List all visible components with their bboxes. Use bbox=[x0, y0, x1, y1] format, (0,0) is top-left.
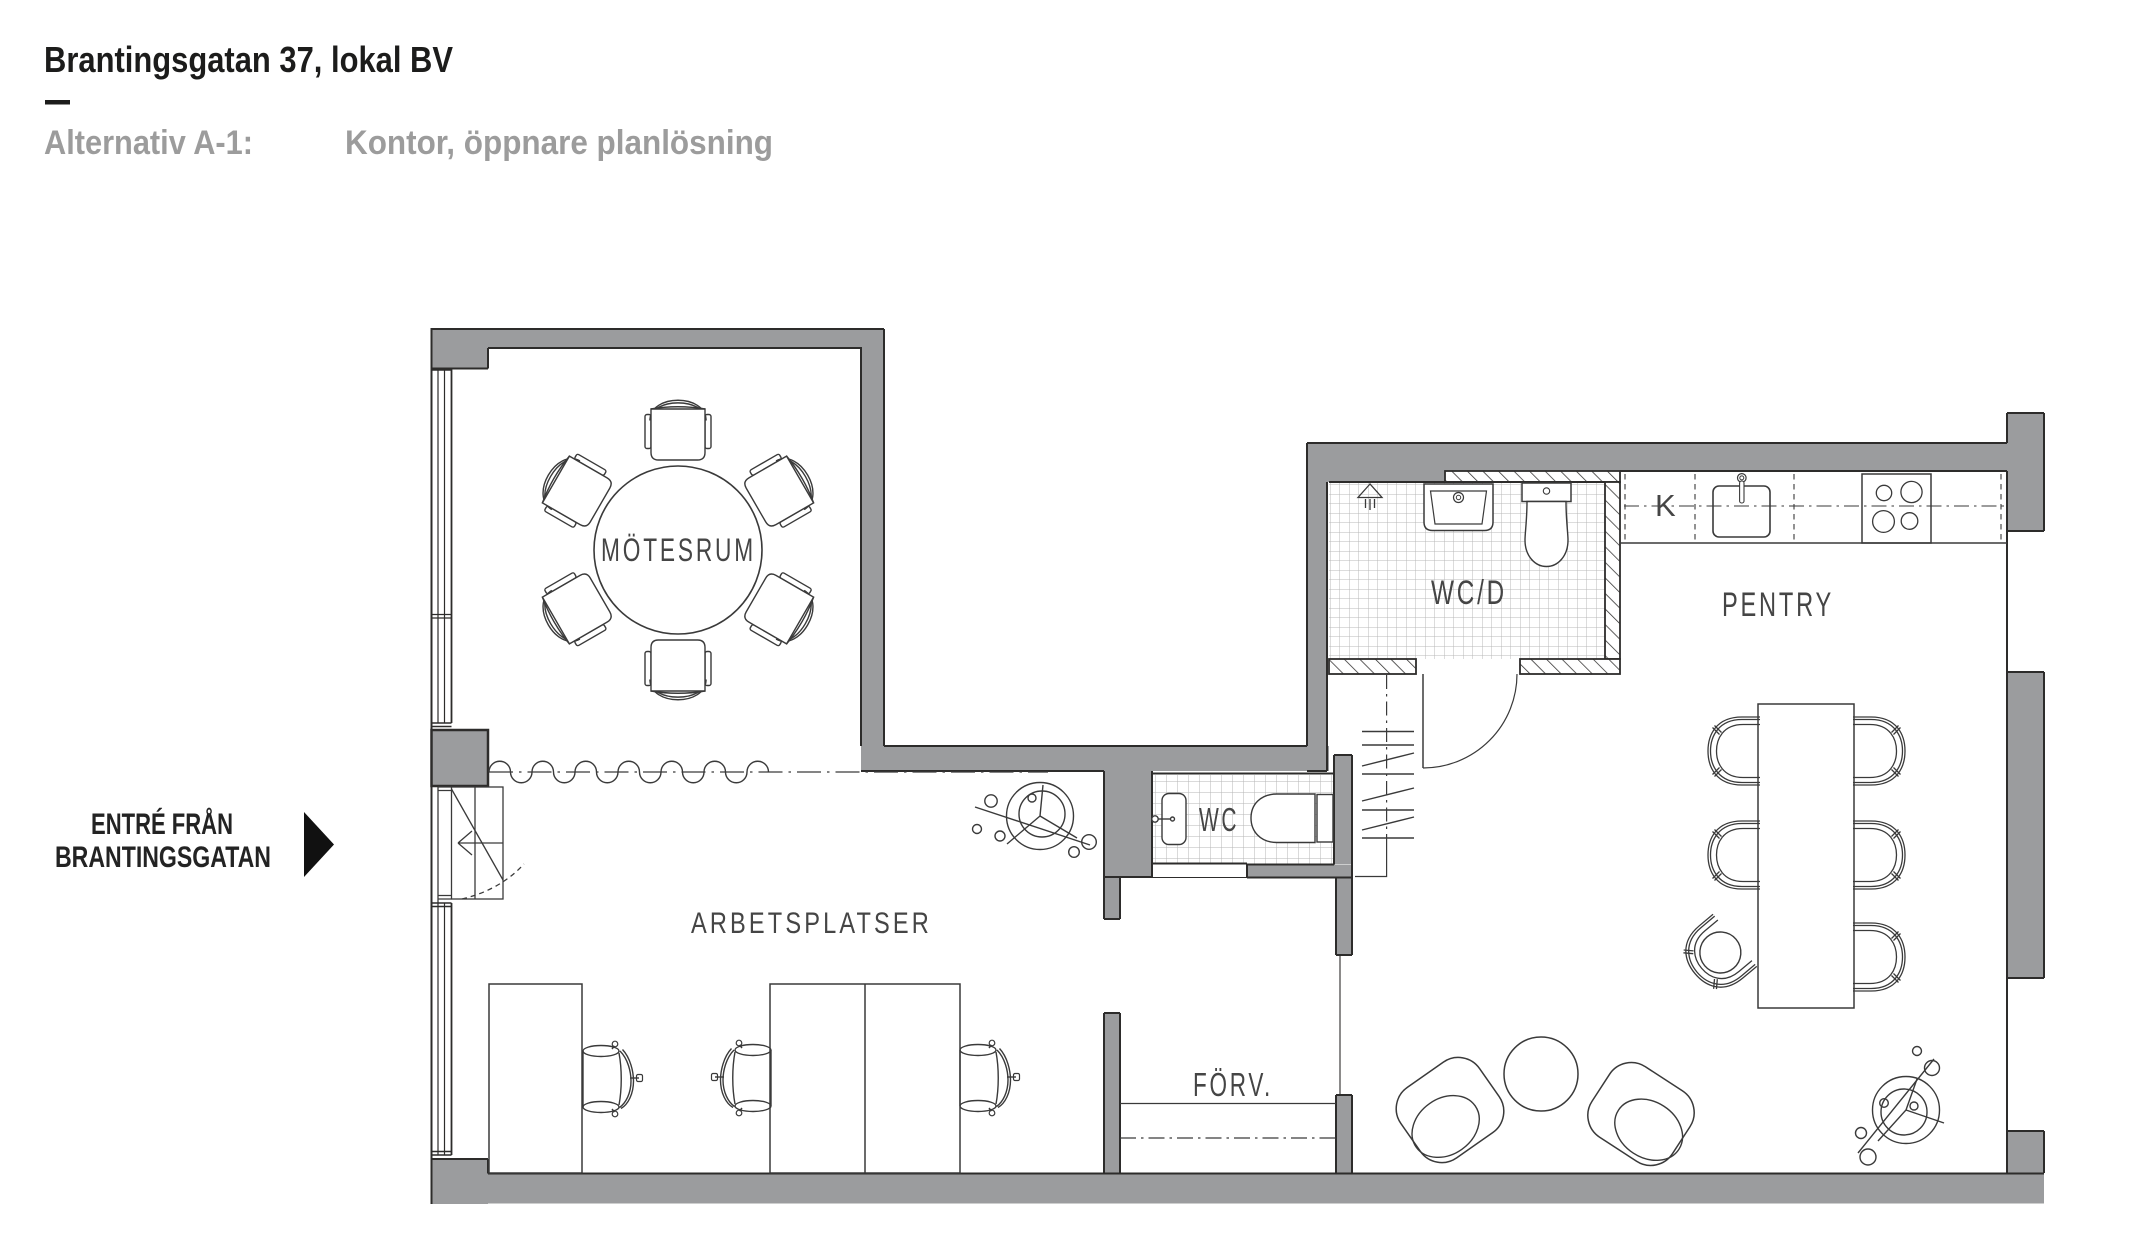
svg-text:BRANTINGSGATAN: BRANTINGSGATAN bbox=[55, 841, 271, 874]
svg-text:Brantingsgatan 37, lokal BV: Brantingsgatan 37, lokal BV bbox=[44, 39, 453, 80]
svg-text:ENTRÉ FRÅN: ENTRÉ FRÅN bbox=[91, 807, 233, 841]
svg-text:MÖTESRUM: MÖTESRUM bbox=[601, 532, 756, 568]
svg-text:K: K bbox=[1655, 488, 1680, 523]
svg-text:WC/D: WC/D bbox=[1431, 574, 1507, 612]
svg-text:ARBETSPLATSER: ARBETSPLATSER bbox=[691, 907, 932, 940]
svg-text:FÖRV.: FÖRV. bbox=[1193, 1066, 1273, 1103]
svg-text:WC: WC bbox=[1199, 801, 1239, 838]
svg-text:PENTRY: PENTRY bbox=[1722, 586, 1834, 624]
svg-text:Alternativ A-1:: Alternativ A-1: bbox=[44, 124, 253, 162]
svg-text:Kontor, öppnare planlösning: Kontor, öppnare planlösning bbox=[345, 124, 773, 162]
